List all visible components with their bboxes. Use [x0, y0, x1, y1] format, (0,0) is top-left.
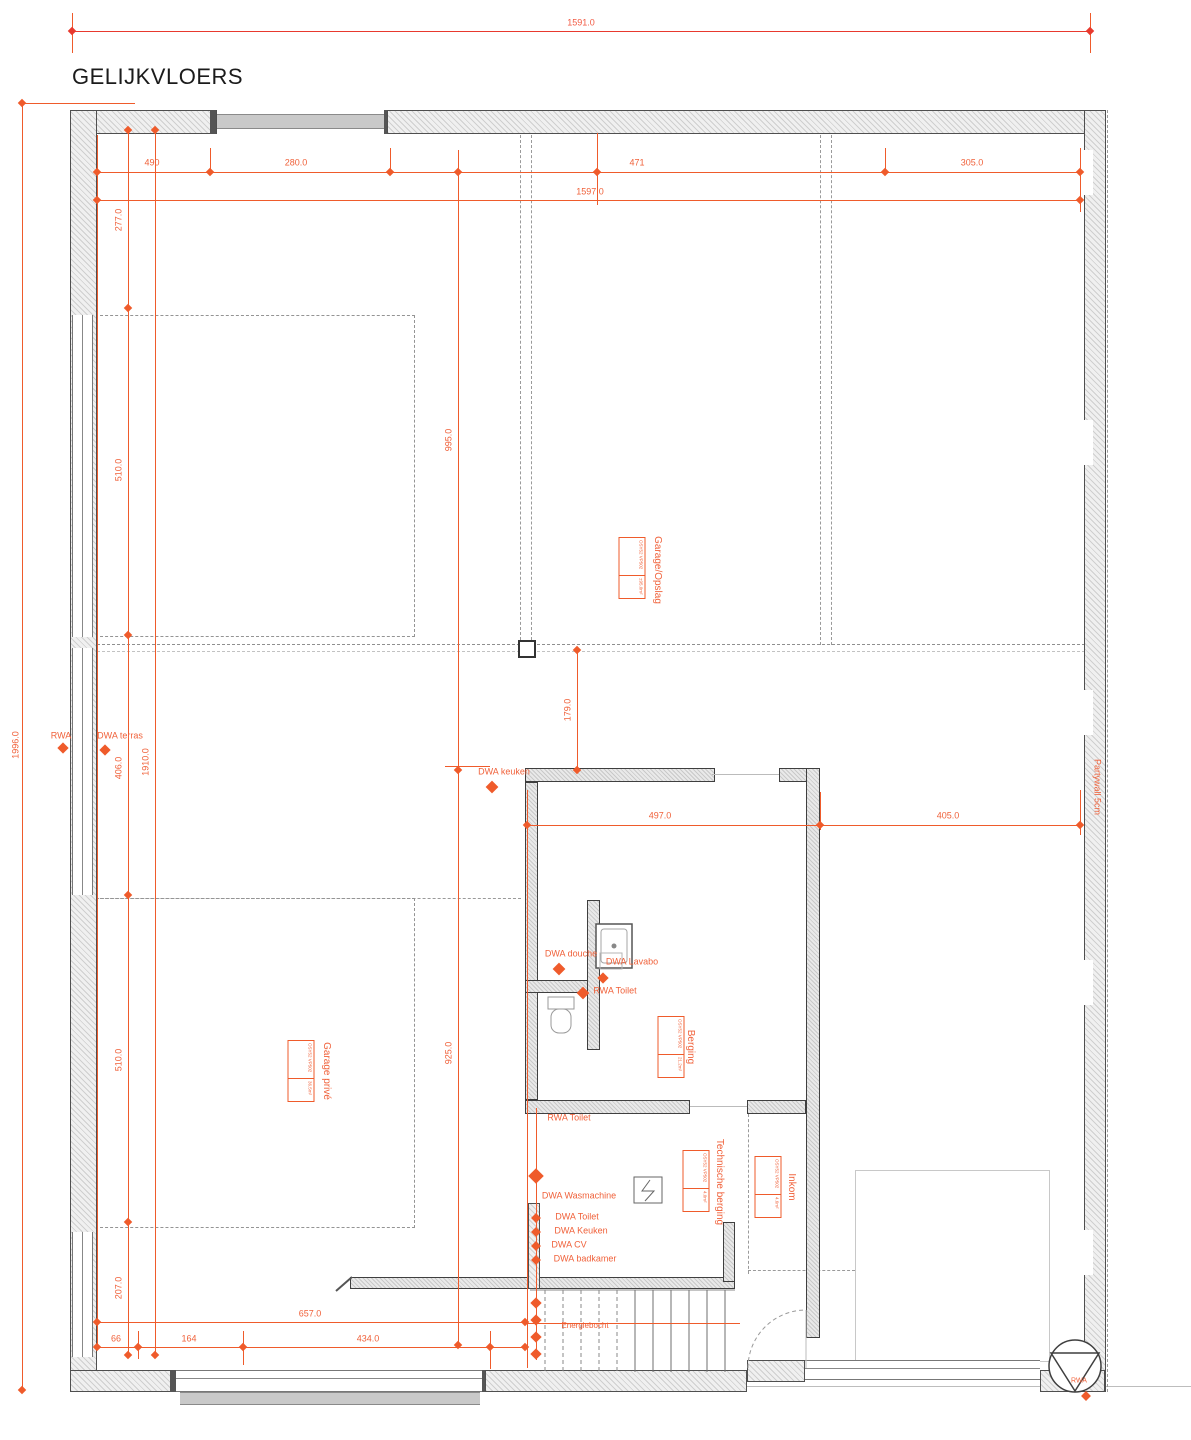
label-energiebocht: Energiebocht: [561, 1322, 608, 1330]
plan-linework: [0, 0, 1191, 1440]
room-tag-code: OSY52 VP502: [684, 1151, 709, 1189]
pipe-line-h: [525, 1323, 740, 1324]
dim-label-305: 305.0: [961, 159, 984, 168]
room-tag-code: OSY52 VP502: [659, 1017, 684, 1055]
label-dwa-badkamer: DWA badkamer: [554, 1255, 617, 1264]
entry-door-swing: [748, 1310, 806, 1368]
room-label-inkom: Inkom: [786, 1173, 796, 1200]
room-tag-area: 36.5m²: [289, 1079, 314, 1101]
room-tag-code: OSY52 VP502: [620, 538, 645, 576]
label-dwa-douche: DWA douche: [545, 950, 597, 959]
label-rwa-corner: RWA: [1071, 1378, 1087, 1385]
label-dwa-keuken-2: DWA Keuken: [554, 1227, 607, 1236]
dim-label-995: 995.0: [445, 429, 454, 452]
dim-label-490: 490: [144, 159, 159, 168]
label-partywall: Partywall 5cm: [1093, 759, 1102, 815]
dim-line-mid-vertical: [458, 150, 459, 1345]
dim-label-471: 471: [629, 159, 644, 168]
dim-line-bottom-chain: [97, 1347, 525, 1348]
label-dwa-cv: DWA CV: [551, 1241, 586, 1250]
dim-label-434: 434.0: [357, 1335, 380, 1344]
dim-label-925: 925.0: [445, 1042, 454, 1065]
meter-box-icon: [634, 1177, 662, 1203]
label-dwa-terras: DWA terras: [97, 732, 143, 741]
dim-label-277: 277.0: [115, 209, 124, 232]
room-label-garage-prive: Garage privé: [321, 1042, 331, 1100]
dim-ext: [22, 103, 135, 104]
dim-line-top-chain2: [97, 200, 1080, 201]
dim-line-179: [577, 650, 578, 770]
dim-line-left-total: [22, 103, 23, 1390]
room-tag-code: OSY52 VP502: [756, 1157, 781, 1195]
stair-treads: [530, 1290, 735, 1372]
dim-line-top-total: [72, 31, 1090, 32]
dim-ext-chain: [97, 135, 98, 1347]
room-tag-area: 4.6m²: [756, 1195, 781, 1217]
room-tag-area: 4.0m²: [684, 1189, 709, 1211]
room-tag-berging: OSY52 VP502 21.2m²: [658, 1016, 685, 1078]
dim-label-657: 657.0: [299, 1310, 322, 1319]
toilet-icon: [548, 997, 574, 1033]
dim-label-164: 164: [181, 1335, 196, 1344]
dim-line-top-chain1: [97, 172, 1080, 173]
dim-label-66: 66: [111, 1335, 121, 1344]
dim-line-1910: [155, 130, 156, 1355]
room-tag-area: 21.2m²: [659, 1055, 684, 1077]
room-tag-garage-opslag: OSY52 VP502 ±95.0m²: [619, 537, 646, 599]
room-tag-area: ±95.0m²: [620, 576, 645, 598]
room-label-berging: Berging: [685, 1030, 695, 1064]
dim-ext: [527, 790, 528, 1368]
room-tag-technische-berging: OSY52 VP502 4.0m²: [683, 1150, 710, 1212]
room-tag-code: OSY52 VP502: [289, 1041, 314, 1079]
label-dwa-lavabo: DWA Lavabo: [606, 958, 658, 967]
dim-line-bath-width: [527, 825, 1080, 826]
label-rwa-toilet-2: RWA Toilet: [547, 1114, 590, 1123]
stair-wall-diagonal: [336, 1277, 352, 1291]
dim-label-406: 406.0: [115, 757, 124, 780]
dim-label-1597: 1597.0: [576, 188, 604, 197]
dim-label-179: 179.0: [564, 699, 573, 722]
label-rwa: RWA: [51, 732, 72, 741]
label-dwa-keuken: DWA keuken: [478, 768, 530, 777]
room-tag-inkom: OSY52 VP502 4.6m²: [755, 1156, 782, 1218]
dim-label-405: 405.0: [937, 812, 960, 821]
dim-label-top-total: 1591.0: [567, 19, 595, 28]
room-tag-garage-prive: OSY52 VP502 36.5m²: [288, 1040, 315, 1102]
dim-label-1996: 1996.0: [12, 731, 21, 759]
room-label-garage-opslag: Garage/Opslag: [652, 536, 662, 604]
dim-label-1910: 1910.0: [142, 748, 151, 776]
room-label-technische-berging: Technische berging: [714, 1139, 724, 1225]
floor-plan: GELIJKVLOERS: [0, 0, 1191, 1440]
dim-label-280: 280.0: [285, 159, 308, 168]
dim-label-510b: 510.0: [115, 1049, 124, 1072]
label-dwa-toilet: DWA Toilet: [555, 1213, 599, 1222]
dim-label-207: 207.0: [115, 1277, 124, 1300]
dim-line-left-chain: [128, 130, 129, 1355]
label-rwa-toilet-1: RWA Toilet: [593, 987, 636, 996]
dim-label-510a: 510.0: [115, 459, 124, 482]
dim-line-657: [97, 1322, 525, 1323]
dim-label-497: 497.0: [649, 812, 672, 821]
label-dwa-wasmachine: DWA Wasmachine: [542, 1192, 616, 1201]
